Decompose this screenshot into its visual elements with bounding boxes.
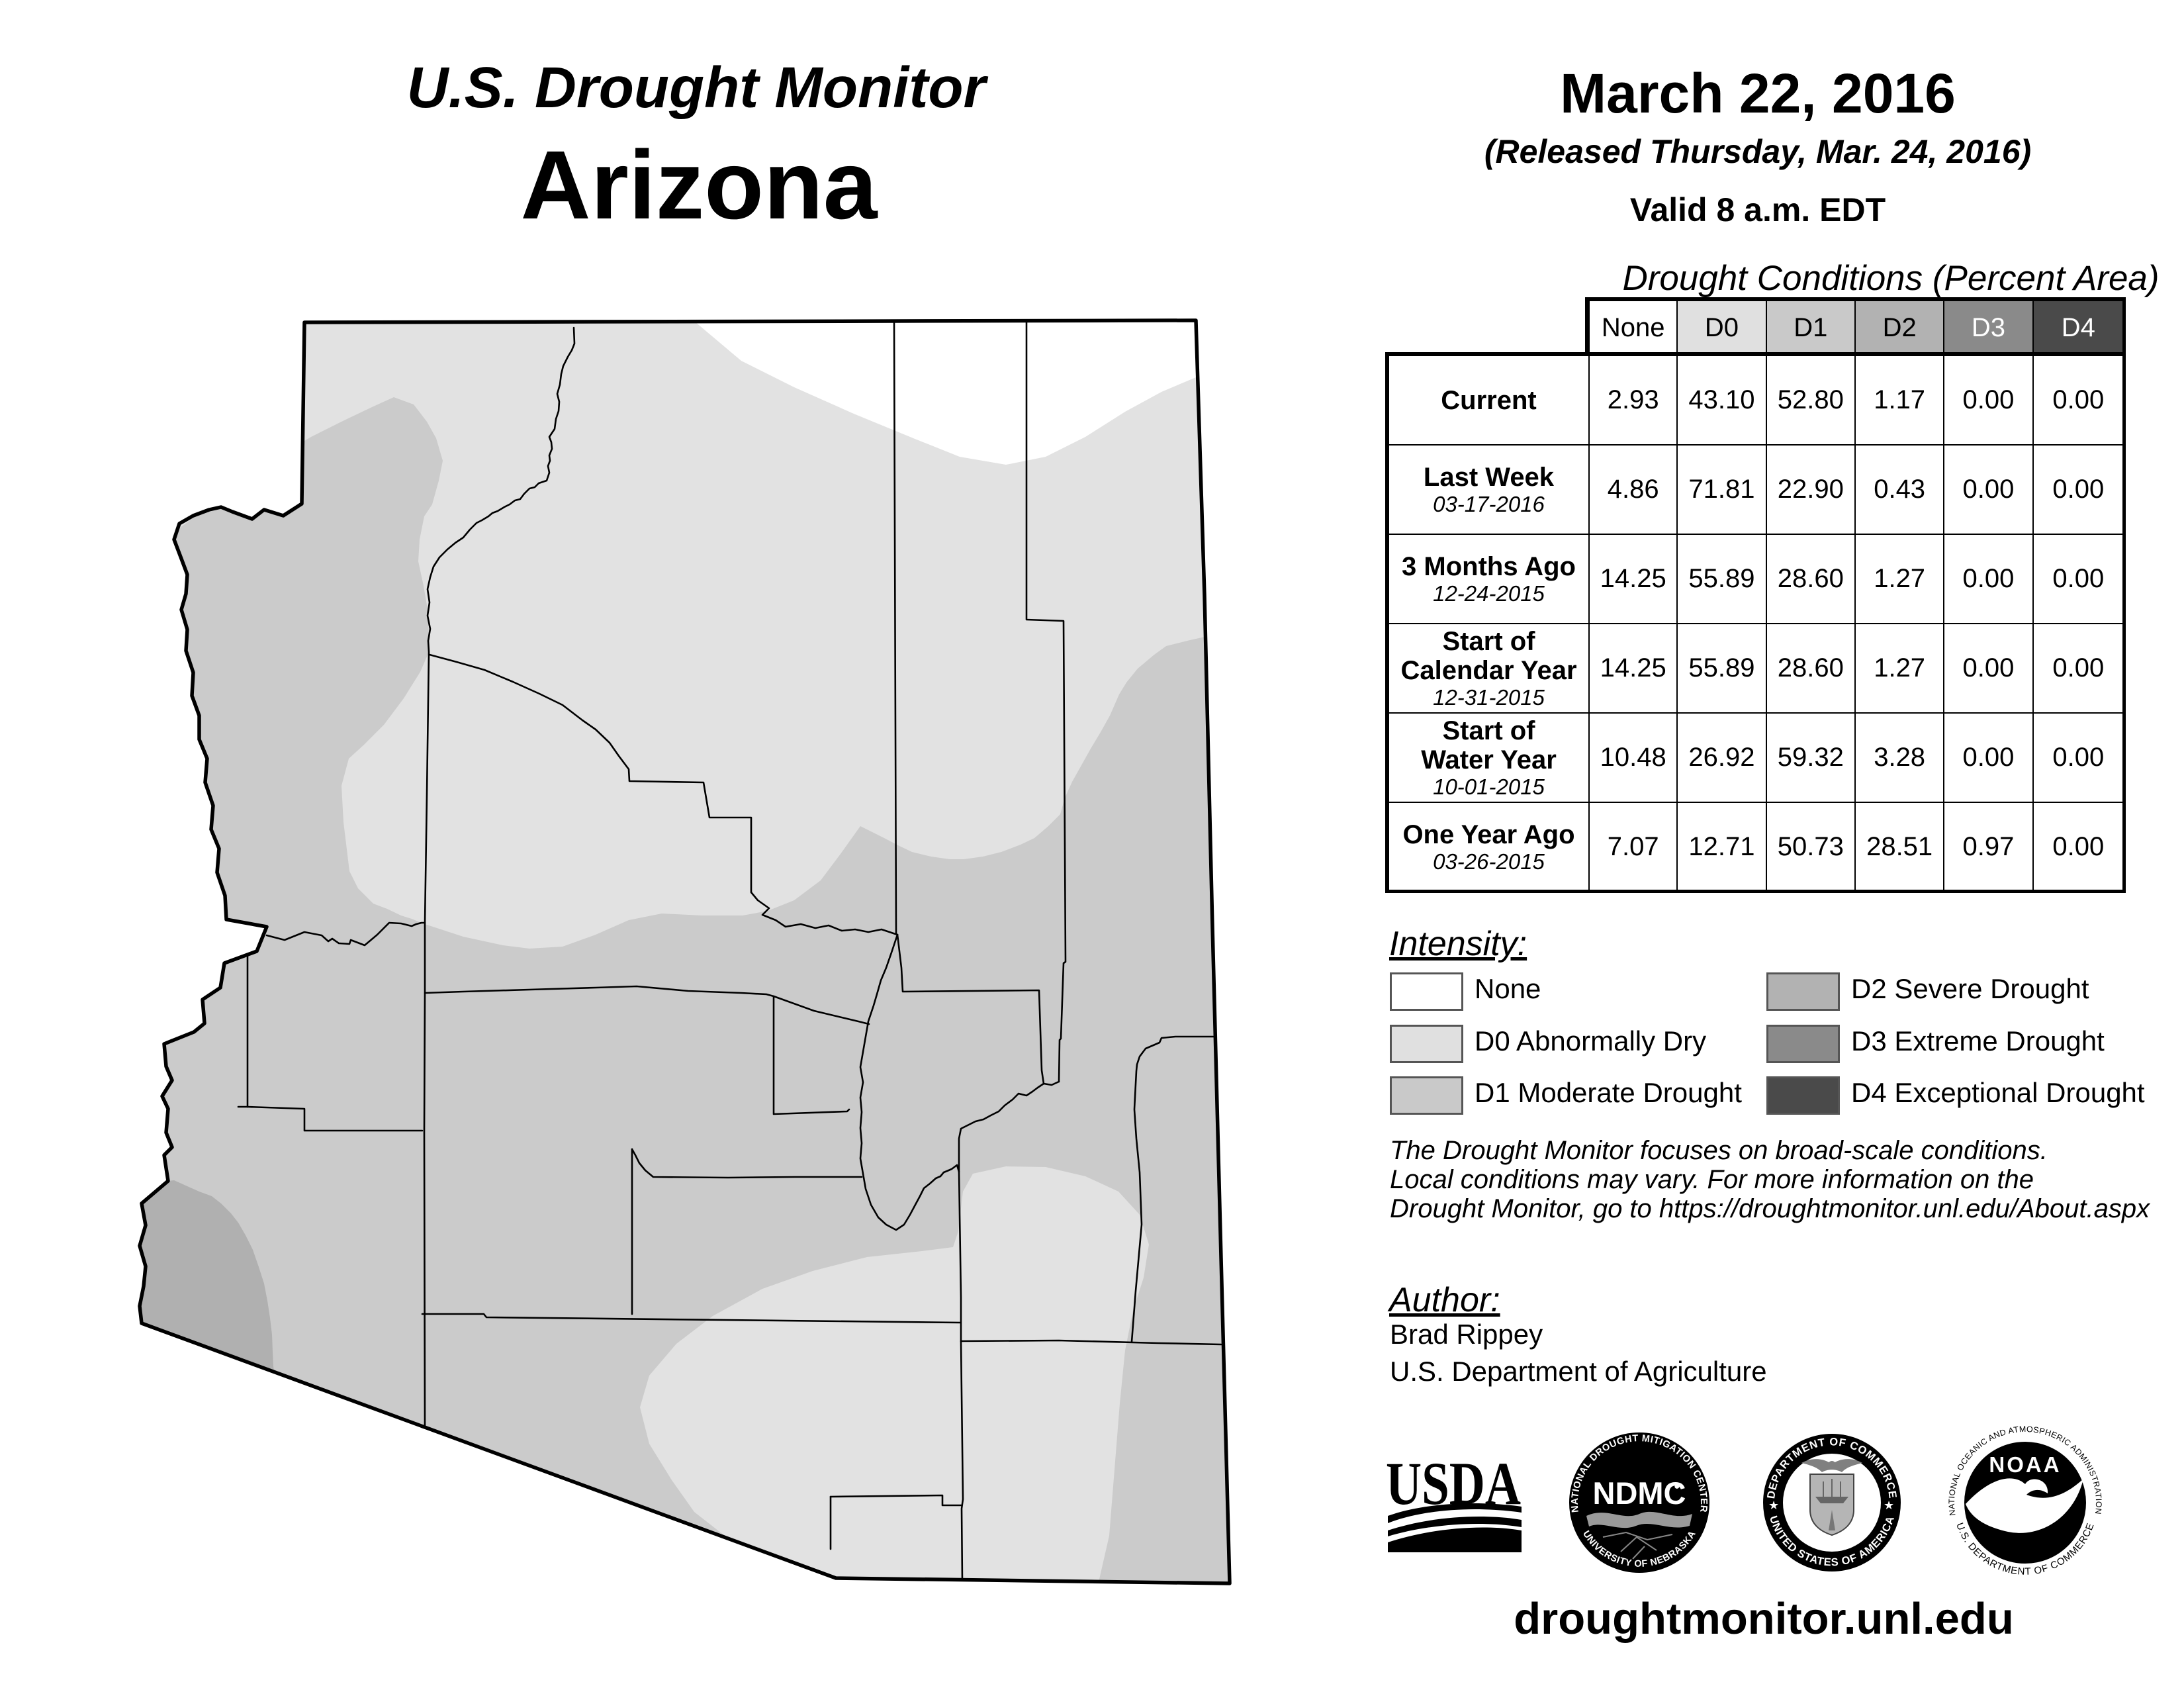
svg-text:★: ★ (1768, 1499, 1779, 1512)
svg-text:★: ★ (1884, 1499, 1894, 1512)
svg-text:NOAA: NOAA (1989, 1452, 2061, 1477)
svg-text:NDMC: NDMC (1593, 1476, 1686, 1511)
